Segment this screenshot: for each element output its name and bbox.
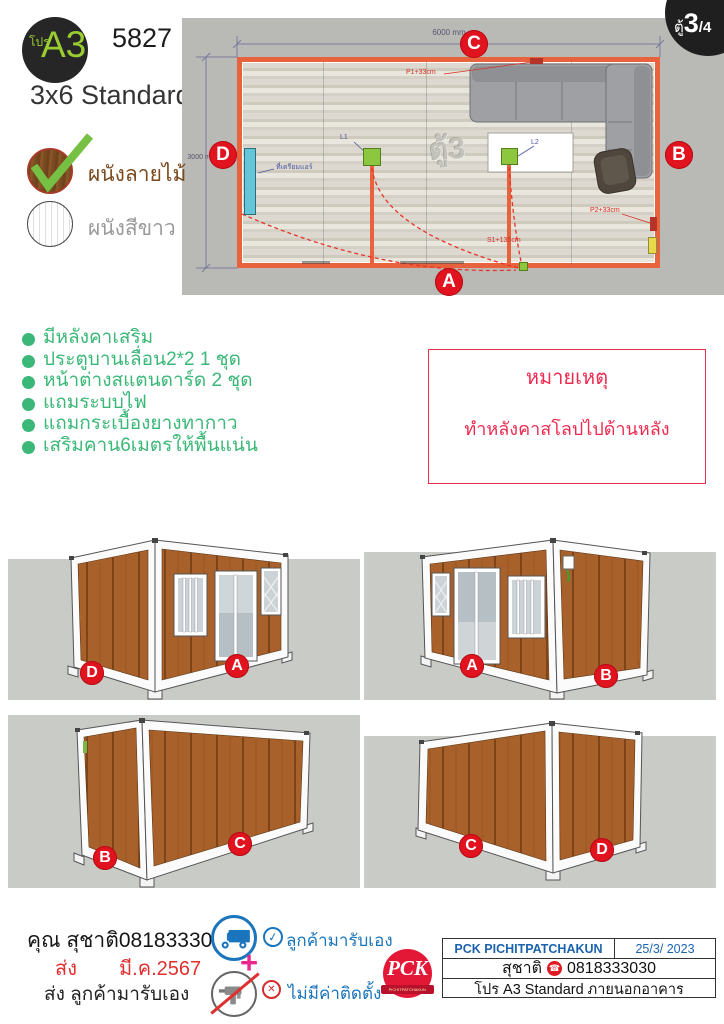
- note-box: หมายเหตุ ทำหลังคาสโลปไปด้านหลัง: [428, 349, 706, 484]
- bullet-dot-icon: [22, 398, 35, 411]
- note-title: หมายเหตุ: [429, 361, 705, 393]
- check-circle-icon: ✓: [261, 925, 284, 948]
- view2-label-b: B: [594, 664, 618, 688]
- note-body: ทำหลังคาสโลปไปด้านหลัง: [429, 414, 705, 443]
- window-barred: [174, 574, 207, 636]
- unit-number: 3: [684, 10, 699, 37]
- plug-p1-marker: [530, 58, 543, 64]
- table-row-company: PCK PICHITPATCHAKUN 25/3/ 2023: [443, 939, 715, 959]
- bullet-dot-icon: [22, 355, 35, 368]
- pickup-label: ลูกค้ามารับเอง: [286, 927, 393, 954]
- render-view-1: D A: [8, 527, 360, 700]
- bullet-dot-icon: [22, 333, 35, 346]
- option-wood-wall-label: ผนังลายไม้: [88, 158, 186, 191]
- switch-s1-marker: [519, 262, 528, 271]
- door-track-mark: [302, 261, 330, 264]
- wall-fixture-label: ที่เตรียมแอร์: [276, 164, 313, 171]
- light-l2-label: L2: [531, 139, 539, 146]
- x-circle-icon: ✕: [262, 980, 281, 999]
- unit-count-text: ตู้ 3 /4: [674, 10, 711, 37]
- contact-phone: 0818333030: [567, 960, 656, 978]
- view1-label-a: A: [225, 654, 249, 678]
- feature-item: หน้าต่างสแตนดาร์ด 2 ชุด: [22, 371, 258, 392]
- pck-logo-text: PCK: [383, 956, 432, 981]
- bullet-dot-icon: [22, 419, 35, 432]
- option-white-wall-label: ผนังสีขาว: [88, 212, 176, 245]
- plug-p2-label: P2+33cm: [590, 207, 620, 214]
- face-c: [418, 723, 553, 873]
- plan-side-c: C: [460, 30, 488, 58]
- document-date: 25/3/ 2023: [614, 939, 715, 958]
- window-lattice: [432, 573, 450, 616]
- window-lattice: [261, 568, 281, 615]
- no-install-label: ไม่มีค่าติดตั้ง: [288, 980, 381, 1007]
- floor-plan: ตู้3: [182, 18, 724, 295]
- container-render-2: [364, 527, 716, 700]
- promo-description: โปร A3 Standard ภายนอกอาคาร: [474, 978, 684, 1001]
- view3-label-c: C: [228, 832, 252, 856]
- light-drop-lines: [372, 165, 509, 266]
- page-title: 3x6 Standard: [30, 80, 191, 111]
- render-view-2: A B: [364, 527, 716, 700]
- container-render-1: [8, 527, 360, 700]
- feature-text: แถมระบบไฟ: [43, 393, 147, 414]
- face-c: [142, 720, 310, 880]
- unit-prefix: ตู้: [674, 20, 684, 35]
- feature-item: แถมกระเบื้องยางทากาว: [22, 414, 258, 435]
- breaker-marker: [648, 237, 657, 254]
- info-table: PCK PICHITPATCHAKUN 25/3/ 2023 สุชาติ ☎ …: [442, 938, 716, 998]
- bullet-dot-icon: [22, 441, 35, 454]
- sliding-door: [215, 571, 257, 661]
- feature-item: ประตูบานเลื่อน2*2 1 ชุด: [22, 350, 258, 371]
- view4-label-c: C: [459, 834, 483, 858]
- promo-badge: โปร A3: [22, 17, 88, 83]
- feature-item: มีหลังคาเสริม: [22, 328, 258, 349]
- order-code: 5827: [112, 23, 172, 54]
- feature-text: ประตูบานเลื่อน2*2 1 ชุด: [43, 350, 241, 371]
- pck-logo-banner: PICHITPATCHAKUN: [381, 985, 434, 994]
- unit-denominator: /4: [699, 20, 712, 35]
- plan-side-d: D: [209, 141, 237, 169]
- table-row-description: โปร A3 Standard ภายนอกอาคาร: [443, 979, 715, 999]
- check-icon: [24, 128, 98, 198]
- window-barred: [508, 576, 545, 638]
- pck-logo-subtext: PICHITPATCHAKUN: [389, 987, 426, 992]
- door-track-mark: [400, 261, 464, 264]
- company-name: PCK PICHITPATCHAKUN: [443, 942, 614, 956]
- phone-icon: ☎: [547, 961, 562, 976]
- ceiling-light-l1: [363, 148, 381, 166]
- plug-p1-label: P1+33cm: [406, 69, 436, 76]
- feature-text: หน้าต่างสแตนดาร์ด 2 ชุด: [43, 371, 253, 392]
- render-view-4: C D: [364, 703, 716, 888]
- face-a: [422, 540, 557, 693]
- feature-item: เสริมคาน6เมตรให้พื้นแน่น: [22, 436, 258, 457]
- sliding-door: [454, 568, 500, 664]
- wall-fixture-cyan: [244, 148, 256, 215]
- view3-label-b: B: [93, 846, 117, 870]
- view1-label-d: D: [80, 661, 104, 685]
- feature-text: แถมกระเบื้องยางทากาว: [43, 414, 238, 435]
- plug-p2-marker: [650, 217, 657, 231]
- promo-badge-model: A3: [41, 24, 86, 66]
- wiring-dashed-lines: [242, 167, 522, 271]
- armchair-shape: [593, 147, 638, 195]
- render-view-3: B C: [8, 703, 360, 888]
- feature-list: มีหลังคาเสริม ประตูบานเลื่อน2*2 1 ชุด หน…: [22, 328, 258, 457]
- switch-s1-label: S1+135cm: [487, 237, 521, 244]
- bullet-dot-icon: [22, 376, 35, 389]
- view2-label-a: A: [460, 654, 484, 678]
- delivery-line: ส่ง ลูกค้ามารับเอง: [44, 979, 189, 1009]
- view4-label-d: D: [590, 838, 614, 862]
- container-render-4: [364, 703, 716, 888]
- table-row-contact: สุชาติ ☎ 0818333030: [443, 959, 715, 979]
- option-white-wall-swatch: [27, 201, 73, 247]
- ceiling-light-l2: [501, 148, 518, 165]
- feature-text: มีหลังคาเสริม: [43, 328, 153, 349]
- plan-overlay-drawing: [182, 18, 724, 295]
- face-a: [155, 540, 288, 692]
- flyer-page: โปร A3 5827 3x6 Standard ตู้ 3 /4 ตู้3: [0, 0, 724, 1024]
- container-render-3: [8, 703, 360, 888]
- feature-item: แถมระบบไฟ: [22, 393, 258, 414]
- light-l1-label: L1: [340, 134, 348, 141]
- plan-side-a: A: [435, 268, 463, 296]
- feature-text: เสริมคาน6เมตรให้พื้นแน่น: [43, 436, 258, 457]
- plan-side-b: B: [665, 141, 693, 169]
